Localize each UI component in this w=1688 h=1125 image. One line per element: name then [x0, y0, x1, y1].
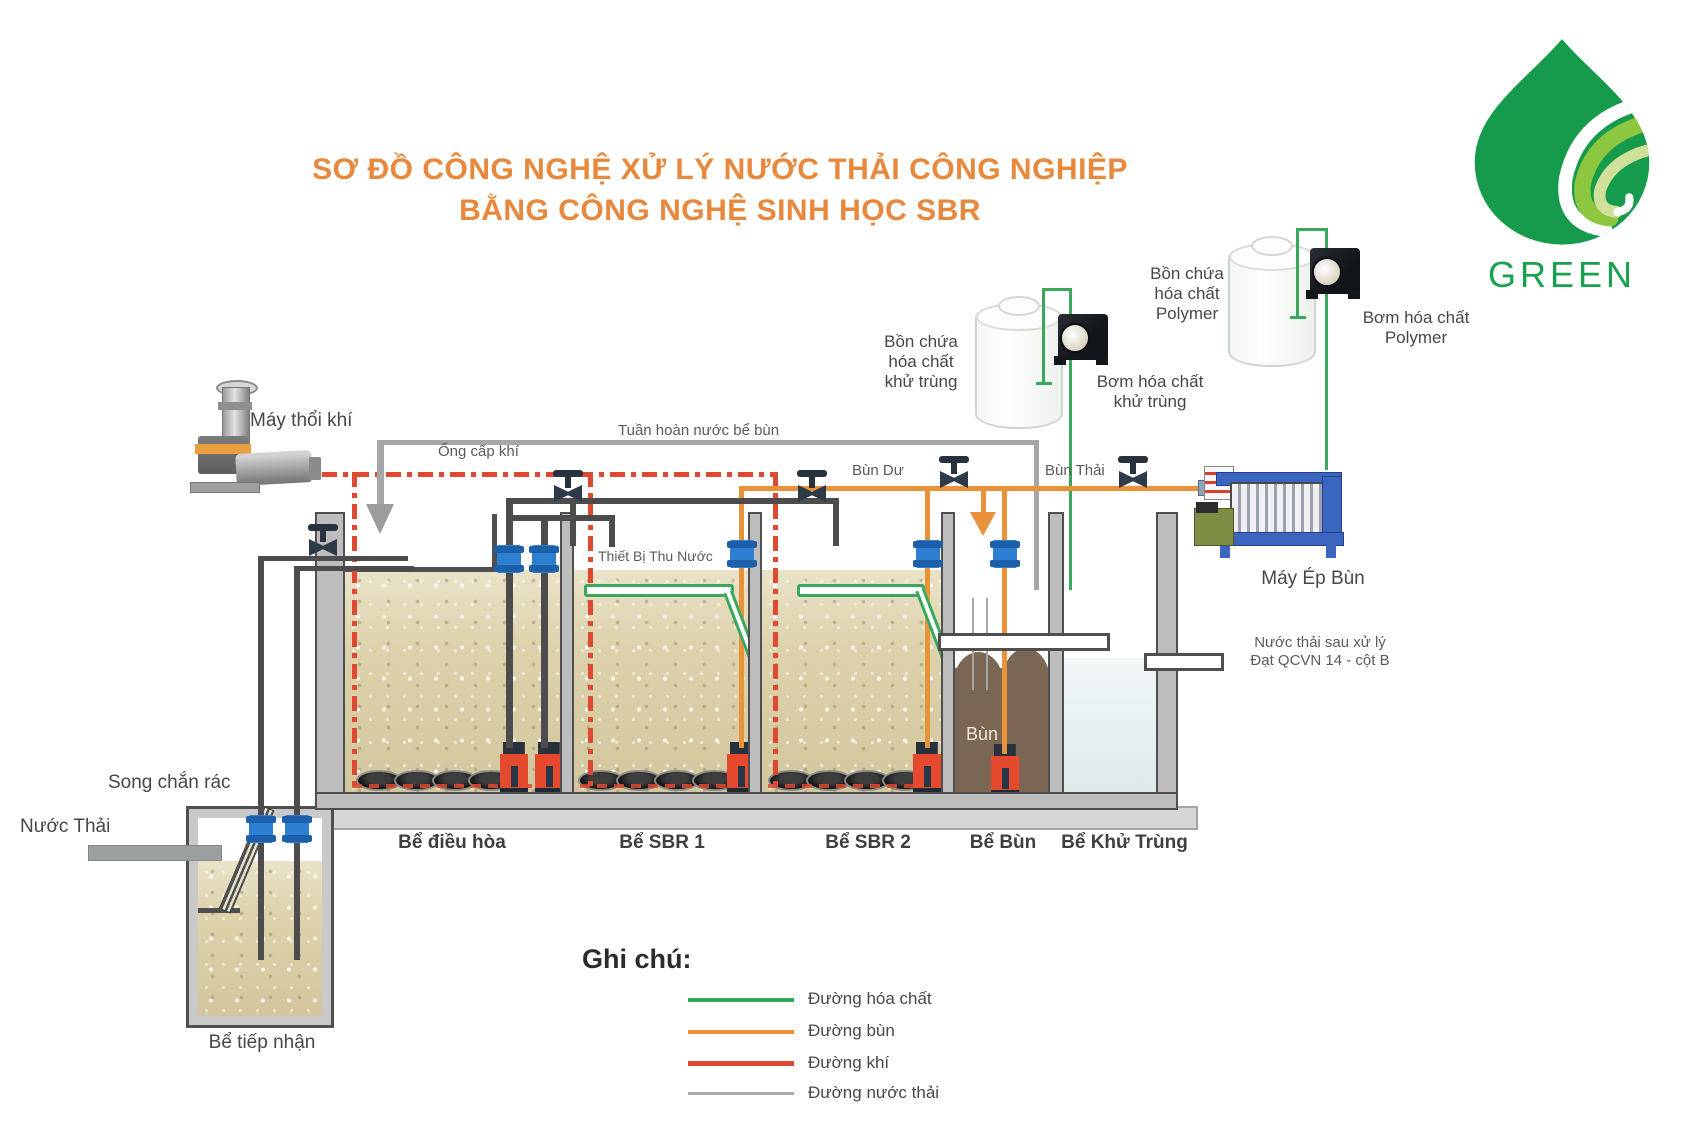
- legend-line-air: [688, 1061, 794, 1066]
- submersible-pump: [535, 742, 563, 794]
- effluent-label: Nước thải sau xử lý Đạt QCVN 14 - cột B: [1230, 634, 1410, 669]
- tank-floor: [315, 792, 1178, 810]
- polymer-dosing-pump: [1310, 248, 1360, 294]
- check-valve: [249, 815, 273, 843]
- legend-title: Ghi chú:: [582, 944, 692, 976]
- title-line-1: SƠ ĐỒ CÔNG NGHỆ XỬ LÝ NƯỚC THẢI CÔNG NGH…: [280, 150, 1160, 191]
- air-supply-label: Ống cấp khí: [438, 443, 519, 461]
- tank-label-disinfection: Bể Khử Trùng: [1052, 832, 1197, 854]
- blower-base: [190, 482, 260, 493]
- blower-orange-band: [195, 444, 251, 454]
- tank-divider: [941, 512, 955, 810]
- check-valve: [916, 540, 940, 568]
- recirculation-arrow: [366, 504, 394, 534]
- diagram-title: SƠ ĐỒ CÔNG NGHỆ XỬ LÝ NƯỚC THẢI CÔNG NGH…: [280, 150, 1160, 231]
- air-drop-sbr2: [773, 472, 778, 788]
- legend-label-sludge: Đường bùn: [808, 1021, 895, 1041]
- title-line-2: BẰNG CÔNG NGHỆ SINH HỌC SBR: [280, 191, 1160, 232]
- decanter-sbr1: [584, 584, 734, 597]
- tank-label-sludge: Bể Bùn: [958, 832, 1048, 854]
- polymer-pipe-top: [1296, 228, 1328, 231]
- green-drop-logo-icon: [1462, 28, 1662, 253]
- transfer-drop-sbr1: [609, 515, 615, 547]
- check-valve: [497, 545, 521, 573]
- sludge-arrow-shaft: [981, 486, 986, 514]
- air-drop-eq: [352, 472, 357, 788]
- legend-label-chemical: Đường hóa chất: [808, 989, 932, 1009]
- transfer-pipe-lower: [507, 515, 615, 521]
- submersible-pump: [500, 742, 528, 794]
- disinfectant-pump-label: Bơm hóa chất khử trùng: [1082, 372, 1218, 412]
- transfer-drop-valve1: [570, 498, 576, 546]
- gate-valve: [795, 470, 829, 504]
- decanter-label: Thiết Bị Thu Nước: [598, 548, 713, 565]
- transfer-drop-sbr2: [833, 498, 839, 546]
- tank-label-equalization: Bể điều hòa: [392, 832, 512, 854]
- blower-label: Máy thổi khí: [250, 410, 352, 432]
- legend-label-air: Đường khí: [808, 1053, 889, 1073]
- disinfect-suction-lance: [1042, 288, 1045, 384]
- gate-valve: [306, 524, 340, 558]
- tank-divider: [560, 512, 574, 810]
- disinfectant-dosing-pump: [1058, 314, 1108, 360]
- gate-valve: [937, 456, 971, 490]
- polymer-suction-lance: [1296, 228, 1299, 318]
- logo-text: GREEN: [1452, 254, 1672, 296]
- bar-screen-label: Song chắn rác: [108, 772, 231, 794]
- tank-label-sbr1: Bể SBR 1: [602, 832, 722, 854]
- tank-divider: [1048, 512, 1064, 810]
- eq-pump-riser: [506, 498, 513, 748]
- blower-body: [235, 450, 313, 486]
- press-leg: [1220, 544, 1230, 558]
- check-valve: [285, 815, 309, 843]
- recirculation-riser: [1034, 440, 1039, 590]
- recirculation-drop: [377, 440, 384, 506]
- sbr1-water: [574, 570, 748, 794]
- sludge-arrow: [970, 512, 996, 536]
- press-motor: [1194, 508, 1234, 546]
- decanter-sbr2: [797, 584, 925, 597]
- decant-weir-pipe: [938, 633, 1110, 651]
- blower-silencer-ring: [218, 402, 252, 410]
- sludge-riser-bun: [1002, 486, 1007, 754]
- press-end-plate: [1322, 476, 1342, 540]
- reception-elbow: [294, 566, 414, 571]
- legend-label-wastewater: Đường nước thải: [808, 1083, 939, 1103]
- influent-pipe: [88, 845, 222, 861]
- reception-riser: [258, 556, 264, 960]
- influent-label: Nước Thải: [20, 816, 110, 838]
- sludge-press-label: Máy Ép Bùn: [1238, 568, 1388, 590]
- submersible-pump: [913, 742, 941, 794]
- press-motor-cap: [1196, 502, 1218, 513]
- disinfect-pipe-top: [1042, 288, 1072, 291]
- reception-riser: [294, 566, 300, 960]
- polymer-pump-label: Bơm hóa chất Polymer: [1346, 308, 1486, 348]
- effluent-pipe: [1144, 653, 1224, 671]
- disinfectant-tank-label: Bồn chứa hóa chất khử trùng: [870, 332, 972, 392]
- gate-valve: [1116, 456, 1150, 490]
- air-header-sbr1: [580, 784, 746, 788]
- polymer-lance-foot: [1290, 316, 1306, 319]
- blower-nose: [309, 457, 321, 480]
- disinfection-water: [1064, 658, 1156, 794]
- diagram-canvas: SƠ ĐỒ CÔNG NGHỆ XỬ LÝ NƯỚC THẢI CÔNG NGH…: [0, 0, 1688, 1125]
- gate-valve: [551, 470, 585, 504]
- legend-line-chemical: [688, 998, 794, 1002]
- waste-sludge-label: Bùn Thải: [1045, 462, 1105, 480]
- check-valve: [532, 545, 556, 573]
- sludge-press: [1194, 462, 1362, 562]
- check-valve: [730, 540, 754, 568]
- legend-line-sludge: [688, 1030, 794, 1034]
- press-leg: [1326, 544, 1336, 558]
- air-blower: [190, 378, 322, 500]
- check-valve: [993, 540, 1017, 568]
- air-supply-pipe: [290, 472, 778, 477]
- tank-label-sbr2: Bể SBR 2: [808, 832, 928, 854]
- reception-tank-label: Bể tiếp nhận: [192, 1032, 332, 1054]
- disinfect-lance-foot: [1036, 382, 1052, 385]
- polymer-tank: [1228, 243, 1316, 367]
- excess-sludge-label: Bùn Dư: [852, 462, 904, 480]
- polymer-tank-label: Bồn chứa hóa chất Polymer: [1134, 264, 1240, 324]
- sludge-mound-label: Bùn: [966, 724, 998, 745]
- recirculation-label: Tuần hoàn nước bể bùn: [618, 422, 779, 440]
- legend-line-wastewater: [688, 1092, 794, 1095]
- disinfectant-tank: [975, 303, 1063, 429]
- press-plates: [1230, 482, 1326, 538]
